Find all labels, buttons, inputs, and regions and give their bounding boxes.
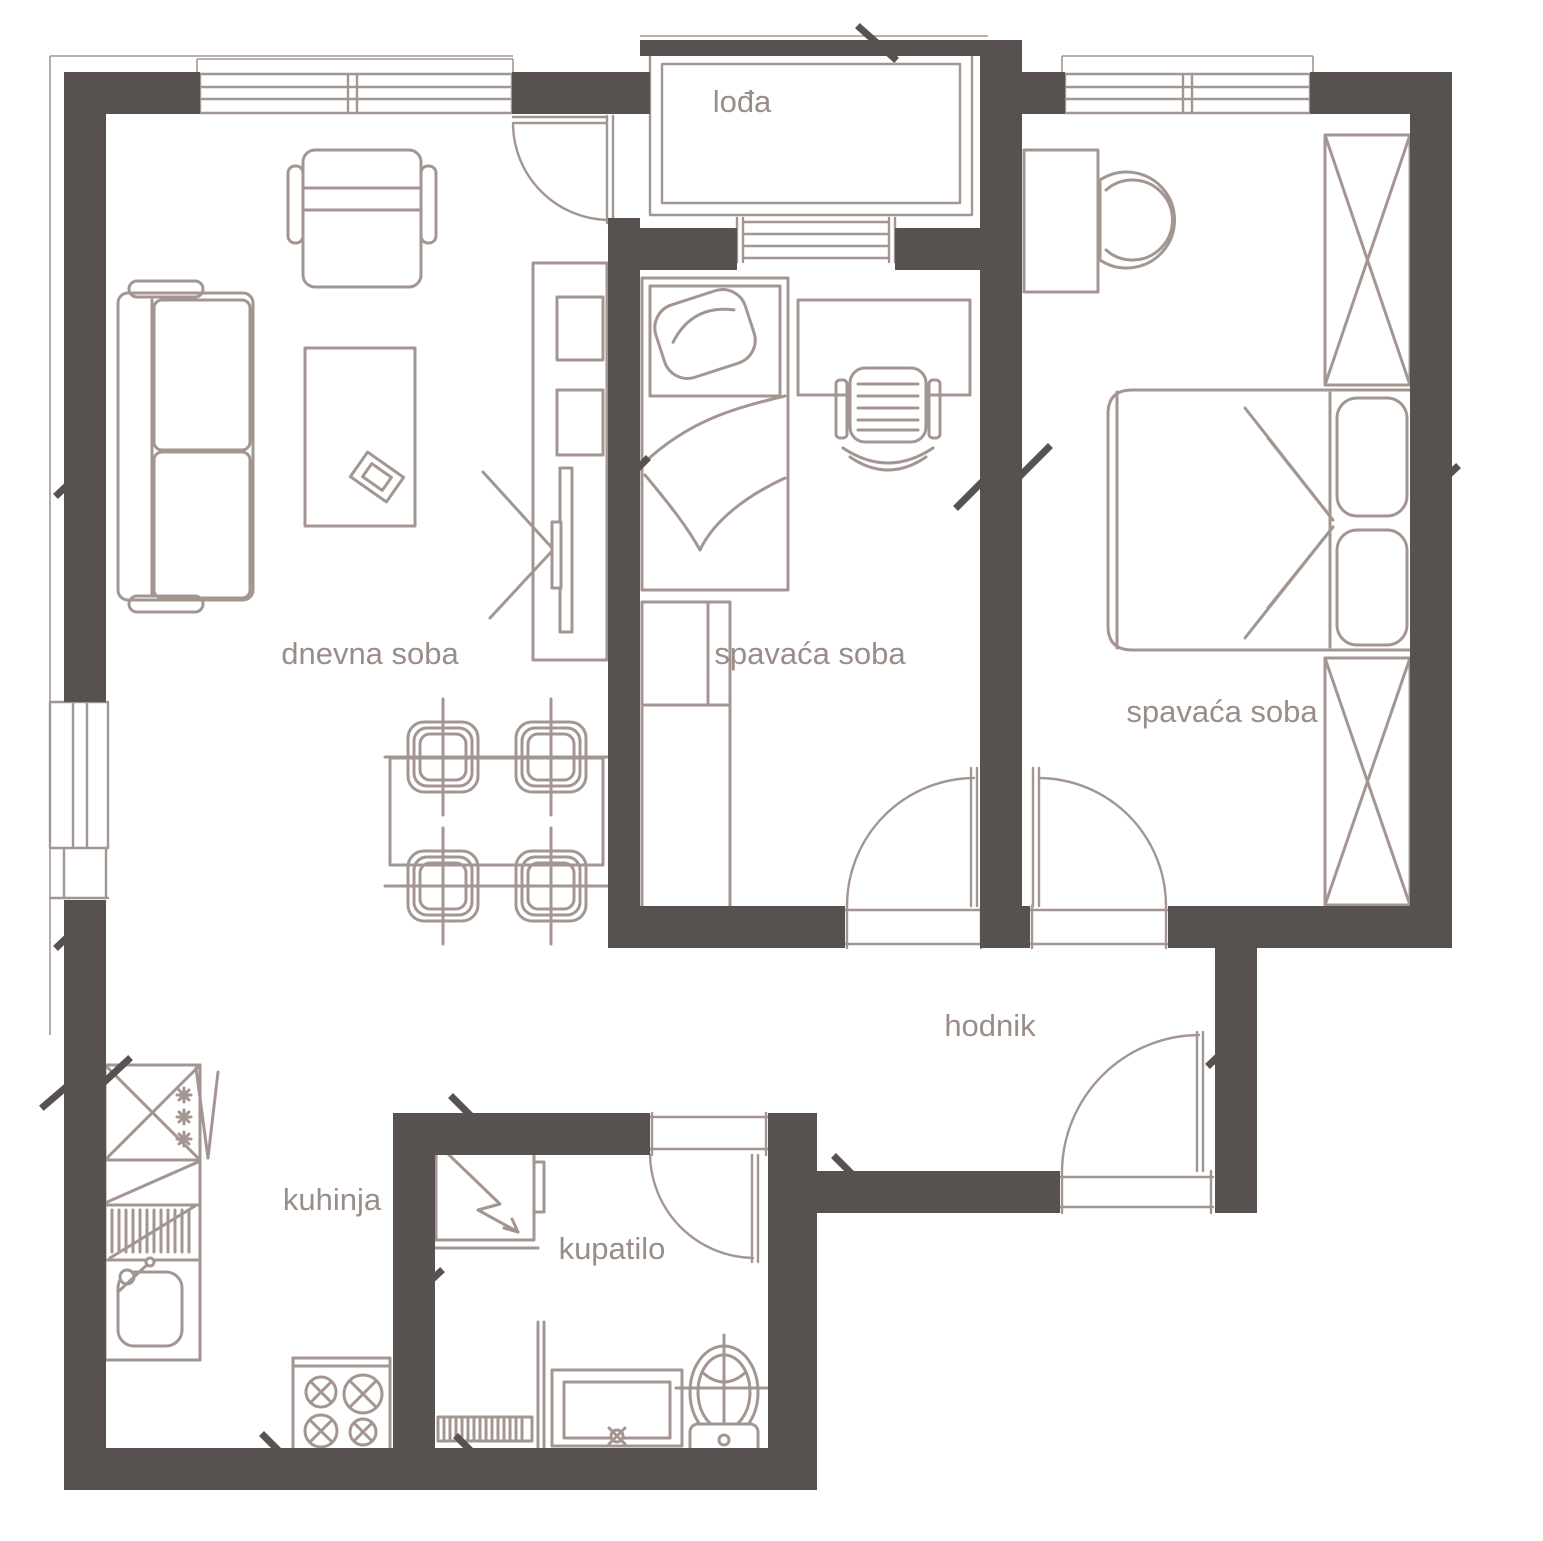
radiator bbox=[438, 1417, 532, 1441]
coffee-table bbox=[305, 348, 415, 526]
floor-plan: lođa dnevna soba spavaća soba spavaća so… bbox=[0, 0, 1543, 1541]
tv-unit bbox=[483, 263, 607, 660]
stove bbox=[293, 1358, 390, 1450]
room-label-bathroom: kupatilo bbox=[559, 1231, 666, 1266]
room-label-loggia: lođa bbox=[713, 84, 772, 119]
desk-bedroom2 bbox=[1024, 150, 1098, 292]
room-labels: lođa dnevna soba spavaća soba spavaća so… bbox=[281, 84, 1318, 1266]
room-label-bedroom2: spavaća soba bbox=[1126, 694, 1318, 729]
window-loggia-bedroom1 bbox=[737, 218, 895, 262]
office-chair bbox=[836, 368, 940, 470]
armchair bbox=[288, 150, 436, 287]
chair-bedroom2 bbox=[1100, 172, 1175, 268]
pillow bbox=[1337, 530, 1407, 645]
exterior-contour bbox=[50, 36, 1313, 1035]
pillow bbox=[1337, 398, 1407, 516]
loggia-outline bbox=[650, 52, 972, 215]
wall-ticks bbox=[44, 28, 1456, 1466]
double-bed bbox=[1108, 390, 1412, 650]
room-label-bedroom1: spavaća soba bbox=[714, 636, 906, 671]
dining-chair bbox=[493, 828, 609, 944]
balcony-door bbox=[513, 116, 613, 223]
washing-machine bbox=[432, 1142, 544, 1248]
door-bedroom2 bbox=[1030, 768, 1168, 948]
bathroom-door bbox=[650, 1113, 768, 1262]
entrance-door bbox=[1060, 1032, 1213, 1213]
wardrobe-top-bedroom2 bbox=[1325, 135, 1410, 385]
window-living-top bbox=[200, 74, 512, 113]
sofa bbox=[118, 281, 253, 612]
dining-chair bbox=[385, 828, 501, 944]
door-bedroom1 bbox=[845, 768, 983, 948]
vanity-basin bbox=[538, 1322, 682, 1448]
window-bedroom2 bbox=[1065, 74, 1310, 113]
room-label-kitchen: kuhinja bbox=[283, 1182, 382, 1217]
single-bed bbox=[642, 278, 788, 590]
kitchen-counter bbox=[105, 1160, 200, 1260]
window-living-side bbox=[50, 702, 108, 898]
wardrobe-bottom-bedroom2 bbox=[1325, 658, 1410, 905]
room-label-living: dnevna soba bbox=[281, 636, 459, 671]
room-label-hallway: hodnik bbox=[944, 1008, 1036, 1043]
dining-table-set bbox=[385, 699, 609, 944]
